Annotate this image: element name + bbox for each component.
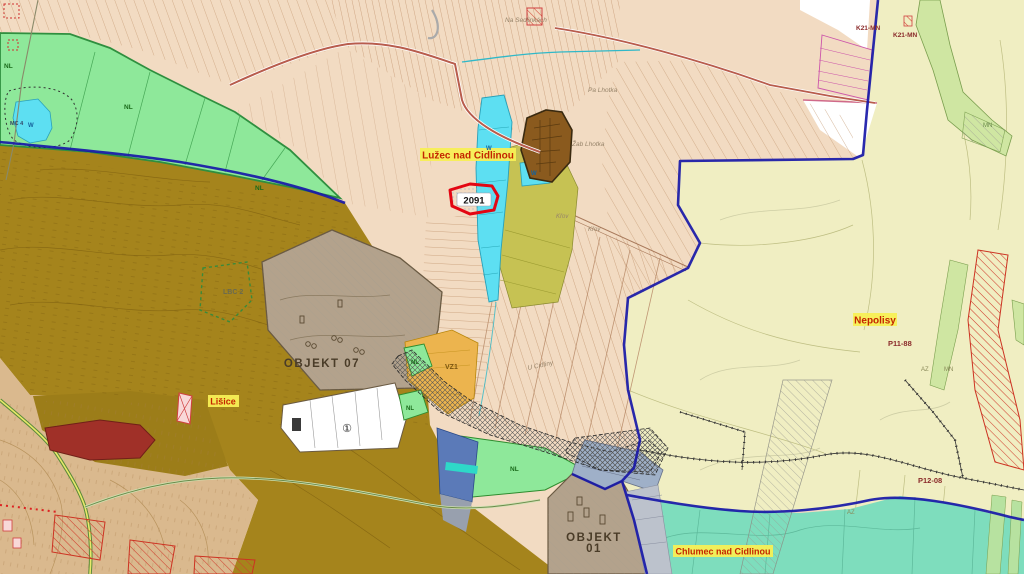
label-lisice: Lišice [210,397,236,407]
loc-pa-lhotka: Pa Lhotka [588,87,618,94]
code-p12-08: P12-08 [918,476,942,485]
label-nepolisy: Nepolisy [854,316,896,327]
zone-w-2: W [486,146,492,152]
zone-nl-1: NL [4,63,13,70]
code-lbc2: LBC 2 [223,289,243,296]
code-vz1: VZ1 [445,364,458,371]
label-objekt01-line2: 01 [586,543,602,555]
zone-nl-2: NL [124,104,133,111]
code-p11-88: P11-88 [888,339,912,348]
loc-zab-lhotka: Žab Lhotka [571,139,605,148]
zone-nl-4: NL [411,360,419,366]
zone-nl-3: NL [255,185,264,192]
circled-one-symbol: ① [342,423,352,435]
cadastral-map-canvas[interactable]: 2091 Lužec nad Cidlinou Lišice Nepolisy … [0,0,1024,574]
loc-krov-1: Křov [556,214,569,220]
label-objekt07: OBJEKT 07 [284,358,360,370]
zone-mn-1: MN [944,367,953,373]
label-luzec: Lužec nad Cidlinou [422,151,514,162]
building-symbol [292,418,301,431]
code-mc4: MC 4 [10,121,24,127]
loc-na-sedlinkach: Na Sedlinkách [505,17,547,24]
code-k21-a: K21-MN [856,25,881,32]
zone-mn-2: MN [983,123,992,129]
parcel-2091[interactable]: 2091 [450,184,498,214]
zone-w-3: W [531,171,537,177]
zone-az-2: AZ [847,510,855,516]
code-k21-b: K21-MN [893,32,918,39]
map-svg: 2091 Lužec nad Cidlinou Lišice Nepolisy … [0,0,1024,574]
zone-nl-5: NL [406,406,414,412]
zone-az-1: AZ [921,367,929,373]
parcel-2091-number: 2091 [463,196,485,207]
label-chlumec: Chlumec nad Cidlinou [675,547,770,557]
zone-w-1: W [28,123,34,129]
zone-nl-6: NL [510,466,519,473]
loc-krov-2: Křov [588,227,601,233]
